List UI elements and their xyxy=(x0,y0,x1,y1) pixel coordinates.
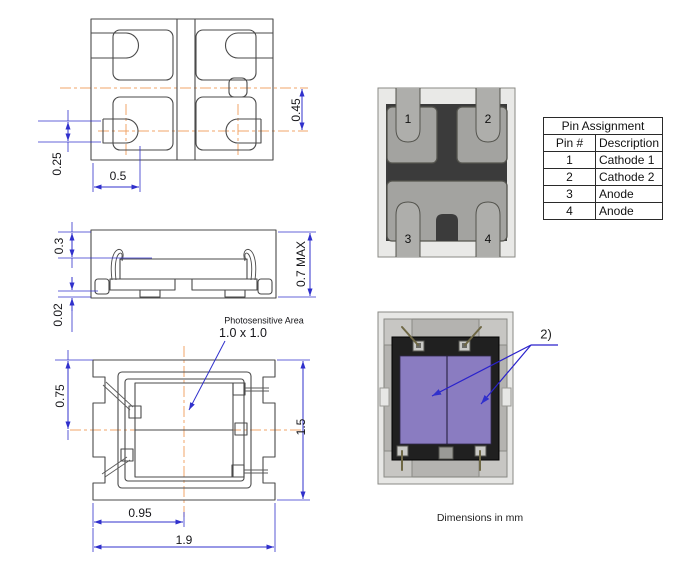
top-view-drawing xyxy=(38,19,308,192)
dim-label-03: 0.3 xyxy=(53,238,65,255)
table-row: 3 Anode xyxy=(544,186,663,203)
drawing-canvas xyxy=(0,0,686,568)
datasheet-page: 0.45 0.25 0.5 0.3 0.02 0.7 MAX 0.75 1.5 … xyxy=(0,0,686,568)
pin-number-4: 4 xyxy=(485,233,492,245)
die-cross-section xyxy=(120,259,247,279)
photosensitive-pointer-arrow xyxy=(189,341,225,410)
pin-number-2: 2 xyxy=(485,113,492,125)
package-outline xyxy=(91,19,273,160)
pad-bottom-left xyxy=(113,97,173,150)
dim-label-095: 0.95 xyxy=(128,507,151,519)
pin-number-3: 3 xyxy=(405,233,412,245)
pad-bottom-right xyxy=(196,97,256,150)
dim-label-075: 0.75 xyxy=(54,384,66,407)
description-cell: Cathode 1 xyxy=(596,152,663,169)
pin-assignment-table: Pin Assignment Pin # Description 1 Catho… xyxy=(543,117,663,220)
table-col-pin: Pin # xyxy=(544,135,596,152)
pad-top-right xyxy=(196,30,256,80)
dim-label-002: 0.02 xyxy=(52,303,64,326)
pin-cell: 1 xyxy=(544,152,596,169)
package-top-render xyxy=(378,312,513,484)
table-col-description: Description xyxy=(596,135,663,152)
dim-label-045: 0.45 xyxy=(290,98,302,121)
lead-3 xyxy=(396,202,420,257)
package-pad-render xyxy=(378,88,515,257)
bottom-view-drawing xyxy=(55,341,310,552)
pin-number-1: 1 xyxy=(405,113,412,125)
units-note: Dimensions in mm xyxy=(437,513,523,524)
description-cell: Cathode 2 xyxy=(596,169,663,186)
table-title: Pin Assignment xyxy=(544,118,663,135)
dim-label-15: 1.5 xyxy=(295,419,307,436)
dim-label-05: 0.5 xyxy=(110,170,127,182)
pin-cell: 4 xyxy=(544,203,596,220)
photosensitive-area xyxy=(400,356,491,444)
table-row: 1 Cathode 1 xyxy=(544,152,663,169)
table-row: 2 Cathode 2 xyxy=(544,169,663,186)
lead-4 xyxy=(476,202,500,257)
pin-cell: 3 xyxy=(544,186,596,203)
photosensitive-area-label: Photosensitive Area xyxy=(224,317,304,326)
table-row: 4 Anode xyxy=(544,203,663,220)
pad-top-left xyxy=(113,30,173,80)
dim-label-025: 0.25 xyxy=(51,152,63,175)
description-cell: Anode xyxy=(596,186,663,203)
description-cell: Anode xyxy=(596,203,663,220)
photosensitive-size-label: 1.0 x 1.0 xyxy=(219,327,267,340)
dim-label-19: 1.9 xyxy=(176,534,193,546)
package-outline xyxy=(91,230,276,298)
pin-cell: 2 xyxy=(544,169,596,186)
anode-notch xyxy=(436,214,458,241)
footnote-2-label: 2) xyxy=(540,328,552,341)
dim-label-07max: 0.7 MAX xyxy=(295,241,307,287)
